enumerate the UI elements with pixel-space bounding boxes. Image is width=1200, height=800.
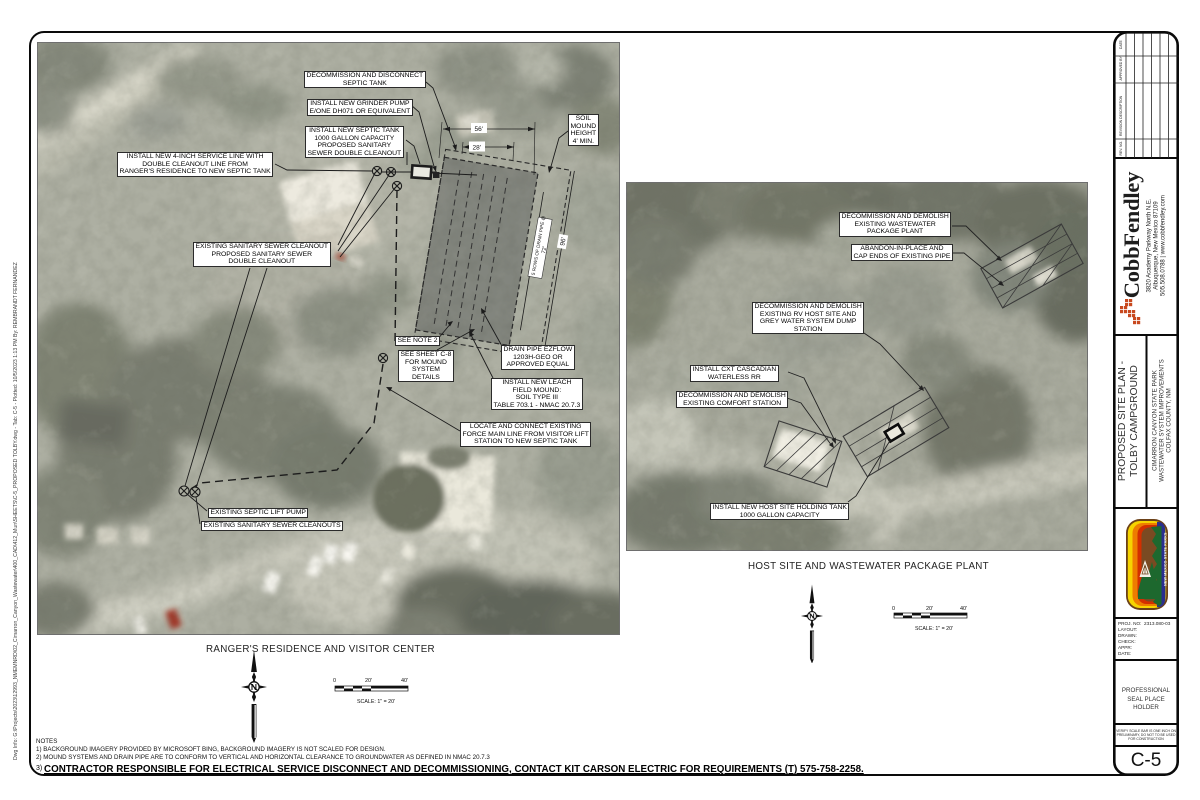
svg-text:NEW MEXICO STATE PARKS: NEW MEXICO STATE PARKS xyxy=(1163,532,1167,586)
svg-text:72': 72' xyxy=(541,246,548,254)
svg-text:56': 56' xyxy=(475,126,483,133)
svg-text:DATE: DATE xyxy=(1119,39,1123,49)
svg-text:APPROVED BY: APPROVED BY xyxy=(1119,55,1123,80)
svg-text:0: 0 xyxy=(333,678,336,684)
svg-text:20': 20' xyxy=(926,606,933,612)
svg-text:SCALE: 1" = 20': SCALE: 1" = 20' xyxy=(915,626,953,632)
svg-text:REV. NO.: REV. NO. xyxy=(1119,141,1123,156)
svg-text:SCALE: 1" = 20': SCALE: 1" = 20' xyxy=(357,699,395,705)
svg-text:96': 96' xyxy=(559,237,567,247)
svg-text:REVISION DESCRIPTION: REVISION DESCRIPTION xyxy=(1119,95,1123,136)
svg-text:20': 20' xyxy=(365,678,372,684)
svg-text:0: 0 xyxy=(892,606,895,612)
svg-text:40': 40' xyxy=(960,606,967,612)
svg-text:40': 40' xyxy=(401,678,408,684)
svg-text:28': 28' xyxy=(473,145,481,152)
